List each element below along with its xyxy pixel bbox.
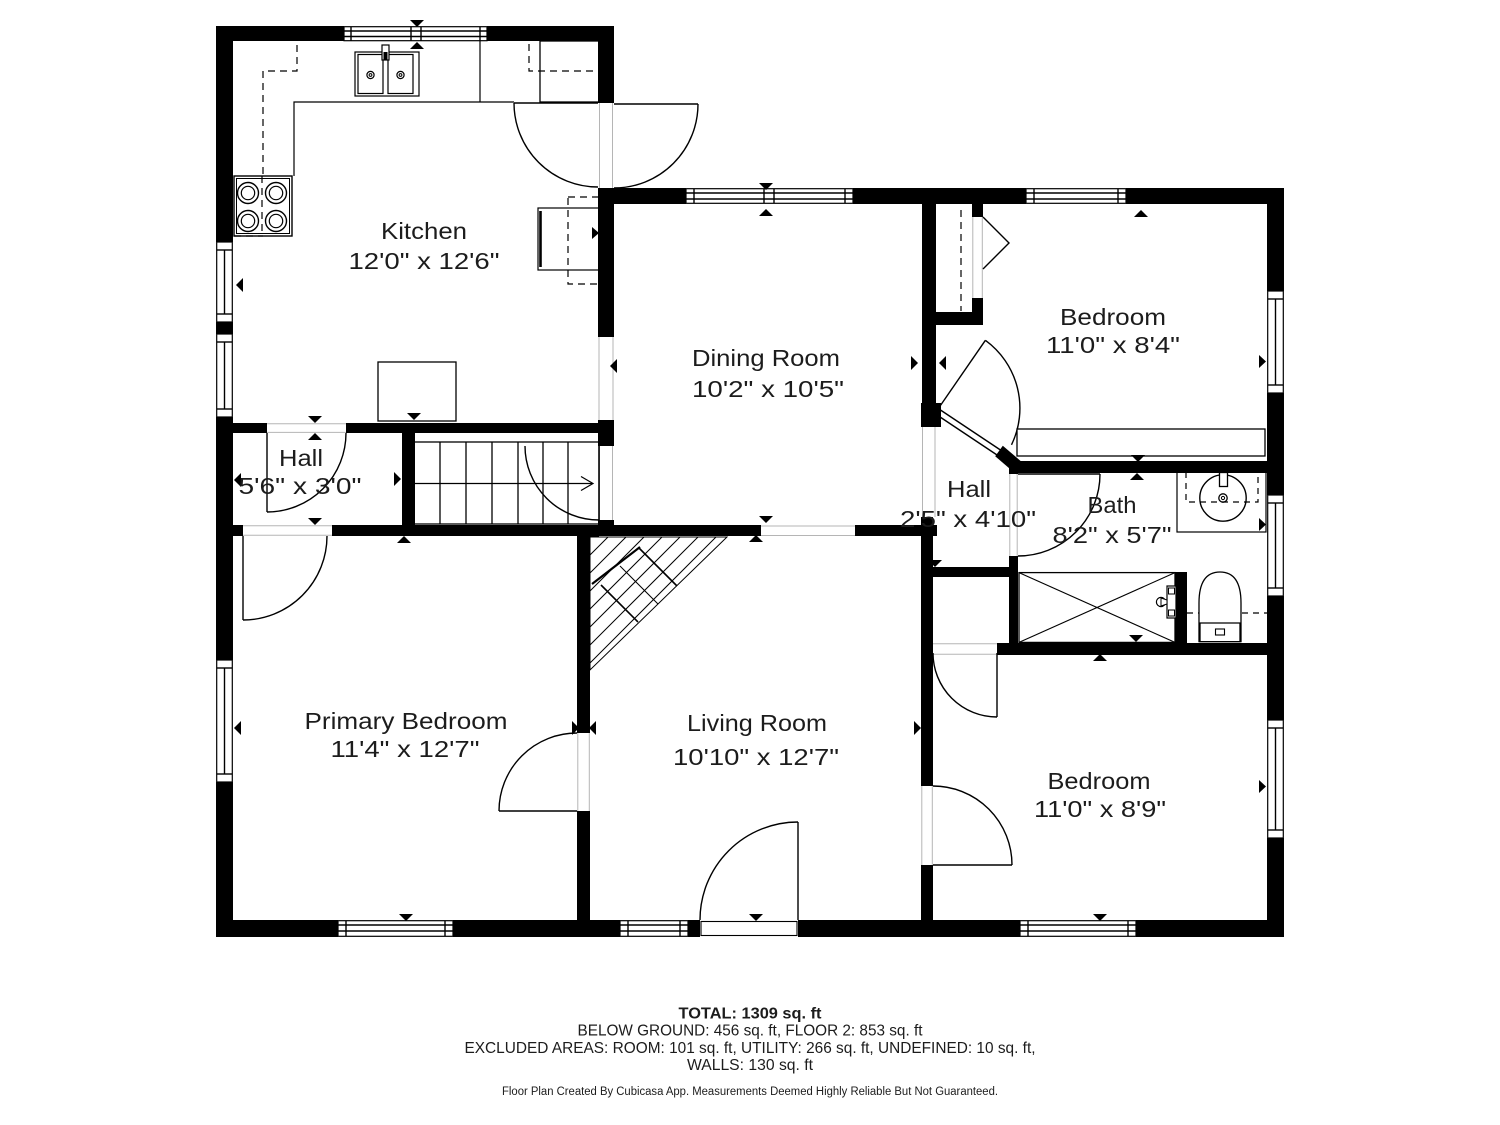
svg-text:TOTAL: 1309 sq. ft: TOTAL: 1309 sq. ft [679, 1006, 823, 1023]
svg-text:BELOW GROUND: 456 sq. ft, FLOO: BELOW GROUND: 456 sq. ft, FLOOR 2: 853 s… [578, 1023, 924, 1040]
svg-text:Hall: Hall [279, 445, 323, 471]
svg-text:Floor Plan Created By Cubicasa: Floor Plan Created By Cubicasa App. Meas… [502, 1086, 998, 1098]
svg-text:2'5" x 4'10": 2'5" x 4'10" [900, 506, 1036, 532]
svg-text:10'10" x 12'7": 10'10" x 12'7" [673, 744, 839, 770]
svg-text:10'2" x 10'5": 10'2" x 10'5" [692, 376, 844, 402]
svg-text:5'6" x 3'0": 5'6" x 3'0" [239, 473, 362, 499]
svg-text:Living Room: Living Room [687, 710, 827, 736]
svg-text:WALLS: 130 sq. ft: WALLS: 130 sq. ft [687, 1057, 814, 1074]
svg-text:Bedroom: Bedroom [1048, 768, 1151, 794]
svg-text:12'0" x 12'6": 12'0" x 12'6" [349, 248, 500, 274]
svg-text:Hall: Hall [947, 476, 991, 502]
svg-text:Bath: Bath [1088, 492, 1137, 518]
svg-text:EXCLUDED AREAS: ROOM: 101 sq.: EXCLUDED AREAS: ROOM: 101 sq. ft, UTILIT… [465, 1040, 1036, 1057]
svg-text:Bedroom: Bedroom [1060, 304, 1166, 330]
svg-text:Dining Room: Dining Room [692, 345, 840, 371]
svg-text:8'2" x 5'7": 8'2" x 5'7" [1053, 522, 1172, 548]
svg-text:11'0" x 8'9": 11'0" x 8'9" [1034, 796, 1166, 822]
svg-text:11'0" x 8'4": 11'0" x 8'4" [1046, 332, 1180, 358]
svg-text:Primary Bedroom: Primary Bedroom [305, 708, 508, 734]
svg-text:Kitchen: Kitchen [381, 218, 467, 244]
svg-text:11'4" x 12'7": 11'4" x 12'7" [331, 736, 480, 762]
